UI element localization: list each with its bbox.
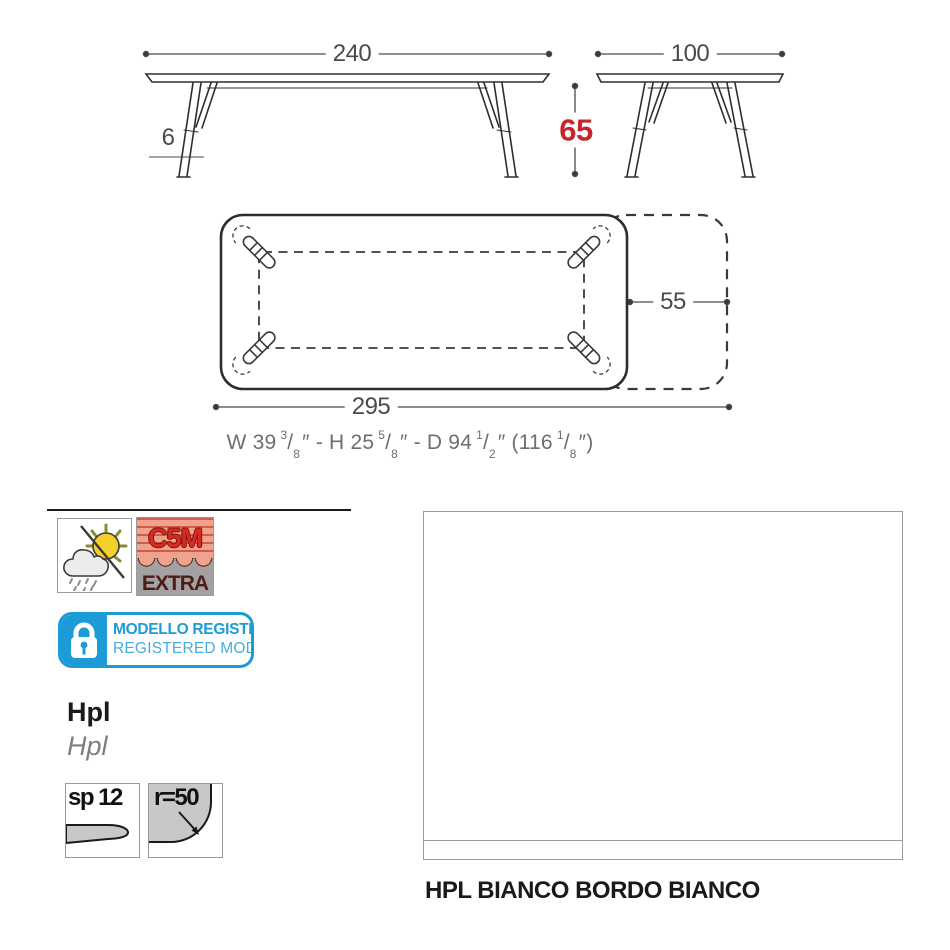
c5m-grade: EXTRA [142, 573, 208, 594]
outdoor-indoor-use-badge [57, 518, 132, 593]
dim-total-295: 295 [345, 395, 398, 419]
thickness-label: sp 12 [68, 785, 122, 811]
c5m-grade-area: EXTRA [137, 571, 213, 595]
c5m-scallop-pattern [137, 558, 213, 571]
table-technical-drawing [0, 0, 950, 480]
side-elevation [597, 74, 783, 177]
padlock-badge-area [61, 615, 107, 665]
padlock-icon [67, 620, 101, 660]
registered-model-line1: MODELLO REGISTRATO [113, 621, 254, 640]
front-elevation [146, 74, 549, 177]
section-divider [47, 509, 351, 511]
dim-depth-100: 100 [664, 42, 717, 66]
material-name-en: Hpl [67, 731, 108, 762]
c5m-code: C5M [148, 525, 202, 552]
registered-model-badge: MODELLO REGISTRATO REGISTERED MODEL [58, 612, 254, 668]
c5m-extra-corrosion-badge: C5M EXTRA [136, 517, 214, 596]
edge-profile-icon [66, 817, 138, 851]
product-spec-sheet: 240 100 65 6 55 295 W 393/8″ - H 255/8″ … [0, 0, 950, 950]
tabletop-outline [221, 215, 627, 389]
c5m-stripes: C5M [137, 518, 213, 558]
material-name-it: Hpl [67, 697, 111, 728]
dim-leg-6: 6 [162, 126, 175, 150]
dim-height-65: 65 [554, 113, 597, 148]
sun-cloud-rain-icon [58, 519, 130, 591]
finish-caption: HPL BIANCO BORDO BIANCO [425, 877, 760, 905]
registered-model-line2: REGISTERED MODEL [113, 640, 254, 659]
top-thickness-badge: sp 12 [65, 783, 140, 858]
imperial-dimensions: W 393/8″ - H 255/8″ - D 941/2″ (1161/8″) [150, 430, 670, 457]
dim-width-240: 240 [326, 42, 379, 66]
radius-label: r=50 [154, 785, 198, 811]
finish-swatch-hpl-white [423, 511, 903, 860]
dim-extension-55: 55 [653, 290, 693, 314]
corner-radius-badge: r=50 [148, 783, 223, 858]
edge-strip [424, 840, 902, 859]
